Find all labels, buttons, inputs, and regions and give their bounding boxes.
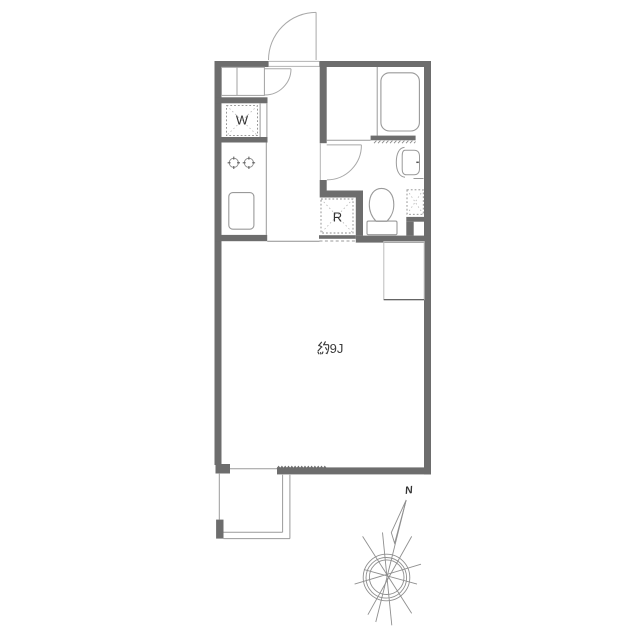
svg-text:9J: 9J (330, 341, 344, 356)
svg-text:W: W (236, 112, 249, 127)
svg-text:R: R (333, 209, 342, 224)
